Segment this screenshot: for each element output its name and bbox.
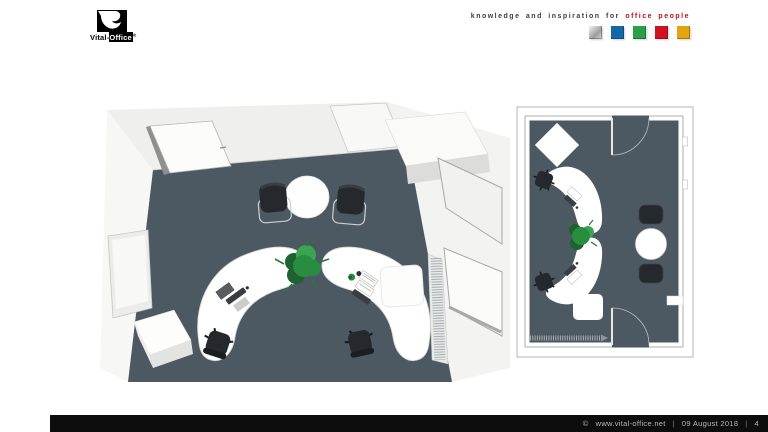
color-square-green xyxy=(633,26,646,39)
slide: { "header": { "logo": { "brand_prefix": … xyxy=(0,0,768,432)
plan-sideboard xyxy=(667,296,683,305)
tagline-block: knowledge and inspiration for office peo… xyxy=(471,13,690,39)
plan-wall-tick-2 xyxy=(683,180,688,189)
footer-date: 09 August 2018 xyxy=(682,419,738,428)
logo-mark: Vital-Office® xyxy=(97,10,127,38)
footer-page-number: 4 xyxy=(755,419,759,428)
leaning-whiteboard xyxy=(108,230,152,318)
office-2d-floorplan-view xyxy=(515,104,695,362)
plan-wall-tick-1 xyxy=(683,137,688,146)
footer-separator-1: | xyxy=(673,419,675,428)
logo-wordmark: Vital-Office® xyxy=(89,33,136,43)
plan-desk-return xyxy=(573,294,603,320)
plan-table-chair-bottom xyxy=(639,264,663,283)
logo-text-vital: Vital- xyxy=(89,32,109,42)
desk-return-box xyxy=(380,265,425,308)
color-square-silver xyxy=(589,26,602,39)
tagline-highlight: office people xyxy=(625,13,690,20)
color-square-red xyxy=(655,26,668,39)
header: Vital-Office® knowledge and inspiration … xyxy=(0,0,768,60)
brand-color-squares xyxy=(471,26,690,39)
logo-text-office: Office xyxy=(109,32,132,42)
footer-copyright: © xyxy=(583,419,589,428)
color-square-gold xyxy=(677,26,690,39)
plan-table-chair-top xyxy=(639,205,663,224)
footer-website[interactable]: www.vital-office.net xyxy=(596,419,666,428)
plan-round-table xyxy=(636,229,667,260)
office-3d-perspective-view xyxy=(98,96,518,386)
tagline: knowledge and inspiration for office peo… xyxy=(471,13,690,20)
registered-mark: ® xyxy=(133,33,137,38)
color-square-blue xyxy=(611,26,624,39)
footer-separator-2: | xyxy=(745,419,747,428)
tagline-lead: knowledge and inspiration for xyxy=(471,13,626,20)
footer-bar: © www.vital-office.net | 09 August 2018 … xyxy=(50,415,768,432)
vital-office-logo: Vital-Office® xyxy=(97,10,127,38)
